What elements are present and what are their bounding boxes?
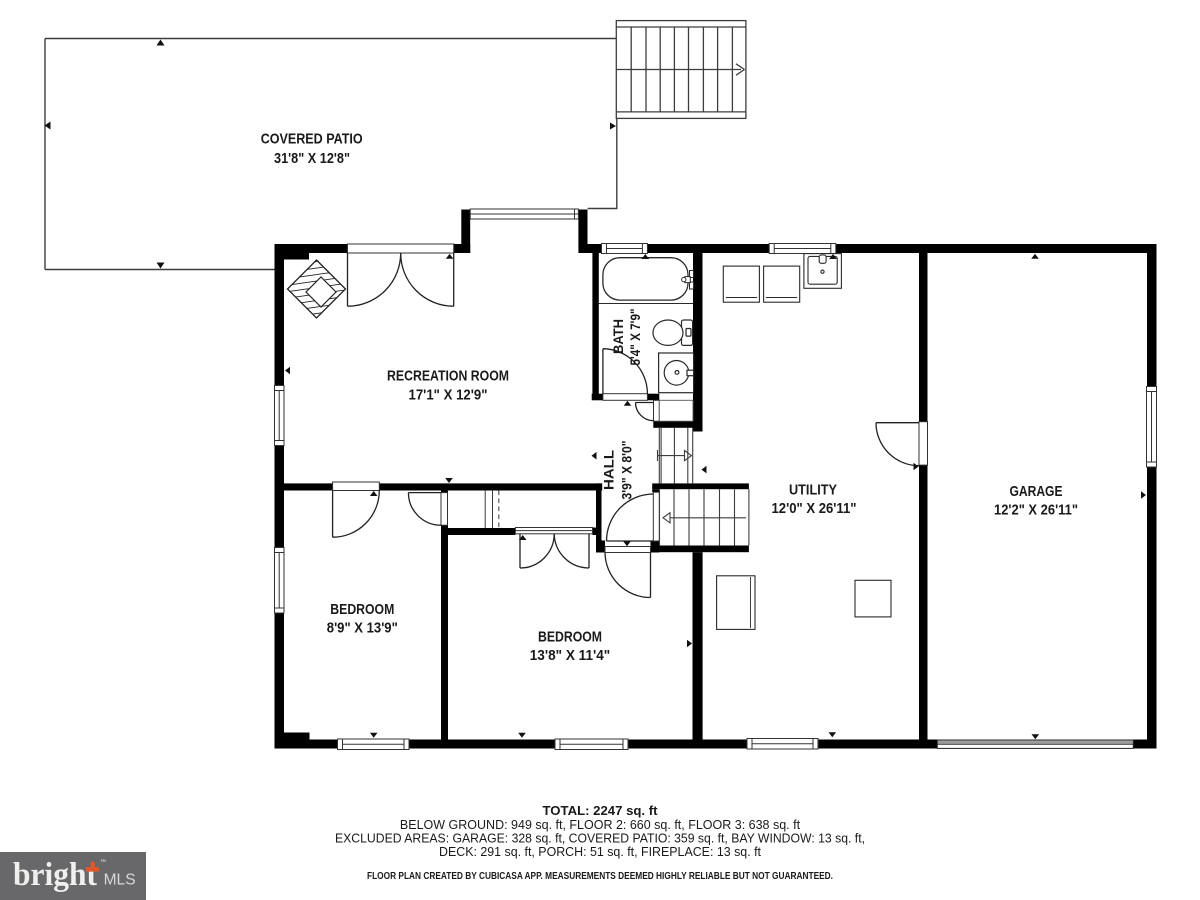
svg-text:bright: bright <box>13 857 97 893</box>
svg-text:EXCLUDED AREAS: GARAGE: 328 sq: EXCLUDED AREAS: GARAGE: 328 sq. ft, COVE… <box>335 832 865 846</box>
svg-text:5'4" X 7'9": 5'4" X 7'9" <box>628 309 643 366</box>
svg-text:HALL: HALL <box>602 450 617 490</box>
svg-text:™: ™ <box>100 859 106 866</box>
svg-text:COVERED PATIO: COVERED PATIO <box>261 131 363 148</box>
svg-text:BELOW GROUND: 949 sq. ft, FLOO: BELOW GROUND: 949 sq. ft, FLOOR 2: 660 s… <box>400 818 801 832</box>
svg-text:12'2" X 26'11": 12'2" X 26'11" <box>994 502 1078 519</box>
svg-text:8'9" X 13'9": 8'9" X 13'9" <box>327 620 398 637</box>
svg-text:TOTAL: 2247 sq. ft: TOTAL: 2247 sq. ft <box>543 804 659 818</box>
svg-text:BEDROOM: BEDROOM <box>330 601 394 618</box>
svg-text:13'8" X 11'4": 13'8" X 11'4" <box>530 647 611 664</box>
svg-text:3'9" X 8'0": 3'9" X 8'0" <box>620 441 635 500</box>
svg-text:31'8" X 12'8": 31'8" X 12'8" <box>274 150 350 167</box>
svg-text:FLOOR PLAN CREATED BY CUBICASA: FLOOR PLAN CREATED BY CUBICASA APP. MEAS… <box>367 871 833 882</box>
svg-text:17'1" X 12'9": 17'1" X 12'9" <box>409 387 488 404</box>
svg-text:12'0" X 26'11": 12'0" X 26'11" <box>772 500 857 517</box>
svg-text:RECREATION ROOM: RECREATION ROOM <box>387 368 509 385</box>
svg-text:BATH: BATH <box>611 319 626 354</box>
svg-text:MLS: MLS <box>104 872 136 889</box>
svg-text:BEDROOM: BEDROOM <box>538 629 602 646</box>
svg-text:UTILITY: UTILITY <box>789 482 837 499</box>
svg-text:DECK: 291 sq. ft, PORCH: 51 sq: DECK: 291 sq. ft, PORCH: 51 sq. ft, FIRE… <box>439 845 762 859</box>
svg-text:GARAGE: GARAGE <box>1010 483 1063 500</box>
